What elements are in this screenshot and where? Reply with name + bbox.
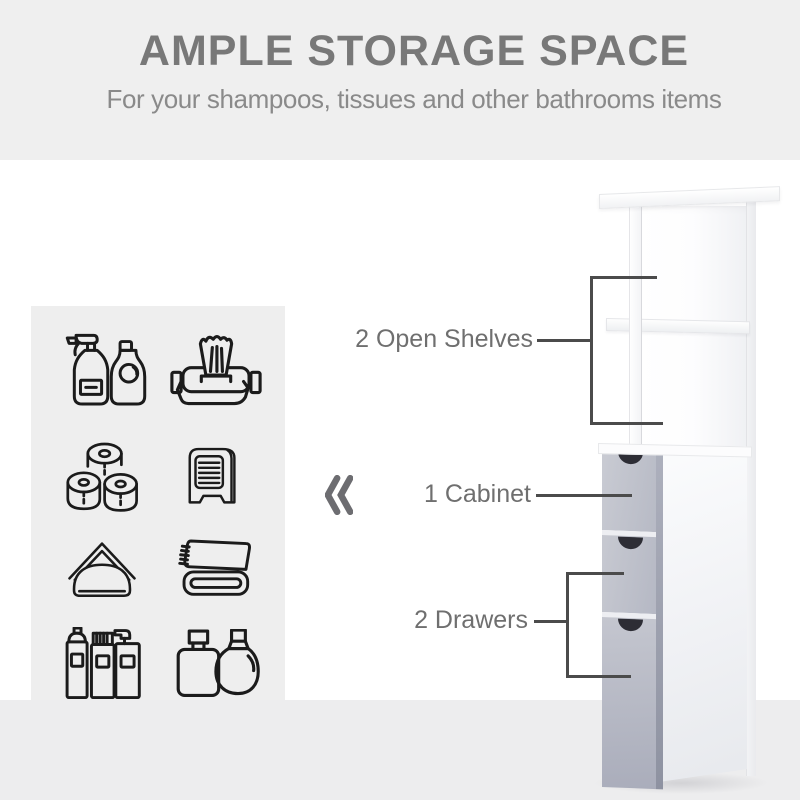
drawers-callout-line <box>534 620 568 623</box>
cabinet-side-panel <box>659 447 747 782</box>
drawers-bracket <box>566 572 569 678</box>
open-shelves-bracket-bottom <box>590 422 663 425</box>
drawer-front-2 <box>602 617 656 789</box>
toiletry-bottles-icon <box>61 627 148 702</box>
folded-towel-icon <box>172 534 258 603</box>
cabinet-side-wall-edge <box>746 197 756 776</box>
page-subtitle: For your shampoos, tissues and other bat… <box>14 84 800 115</box>
open-shelves-bracket-top <box>590 276 657 279</box>
double-chevron-left-icon <box>325 475 353 515</box>
open-shelves-callout-line <box>537 339 591 342</box>
page-title: AMPLE STORAGE SPACE <box>14 27 800 76</box>
product-infographic: AMPLE STORAGE SPACE For your shampoos, t… <box>0 0 800 800</box>
open-shelves-label: 2 Open Shelves <box>355 325 533 354</box>
perfume-bottles-icon <box>169 629 261 703</box>
cabinet-front-post <box>629 203 642 449</box>
drawers-bracket-bottom <box>566 675 631 678</box>
cabinet-middle-shelf <box>606 318 750 334</box>
drawers-label: 2 Drawers <box>414 606 528 635</box>
cabinet-callout-line <box>536 494 632 497</box>
wet-wipes-icon <box>170 331 262 410</box>
napkin-holder-icon <box>64 533 140 598</box>
open-shelves-bracket <box>590 276 593 425</box>
toilet-paper-rolls-icon <box>63 436 143 516</box>
cabinet-front-edge <box>656 452 663 789</box>
spray-bottle-and-soap-icon <box>62 331 150 419</box>
drawers-bracket-top <box>566 572 624 575</box>
cabinet-label: 1 Cabinet <box>424 480 531 509</box>
cabinet-front <box>602 450 663 789</box>
header-band <box>0 0 800 160</box>
napkin-dispenser-icon <box>181 439 246 511</box>
